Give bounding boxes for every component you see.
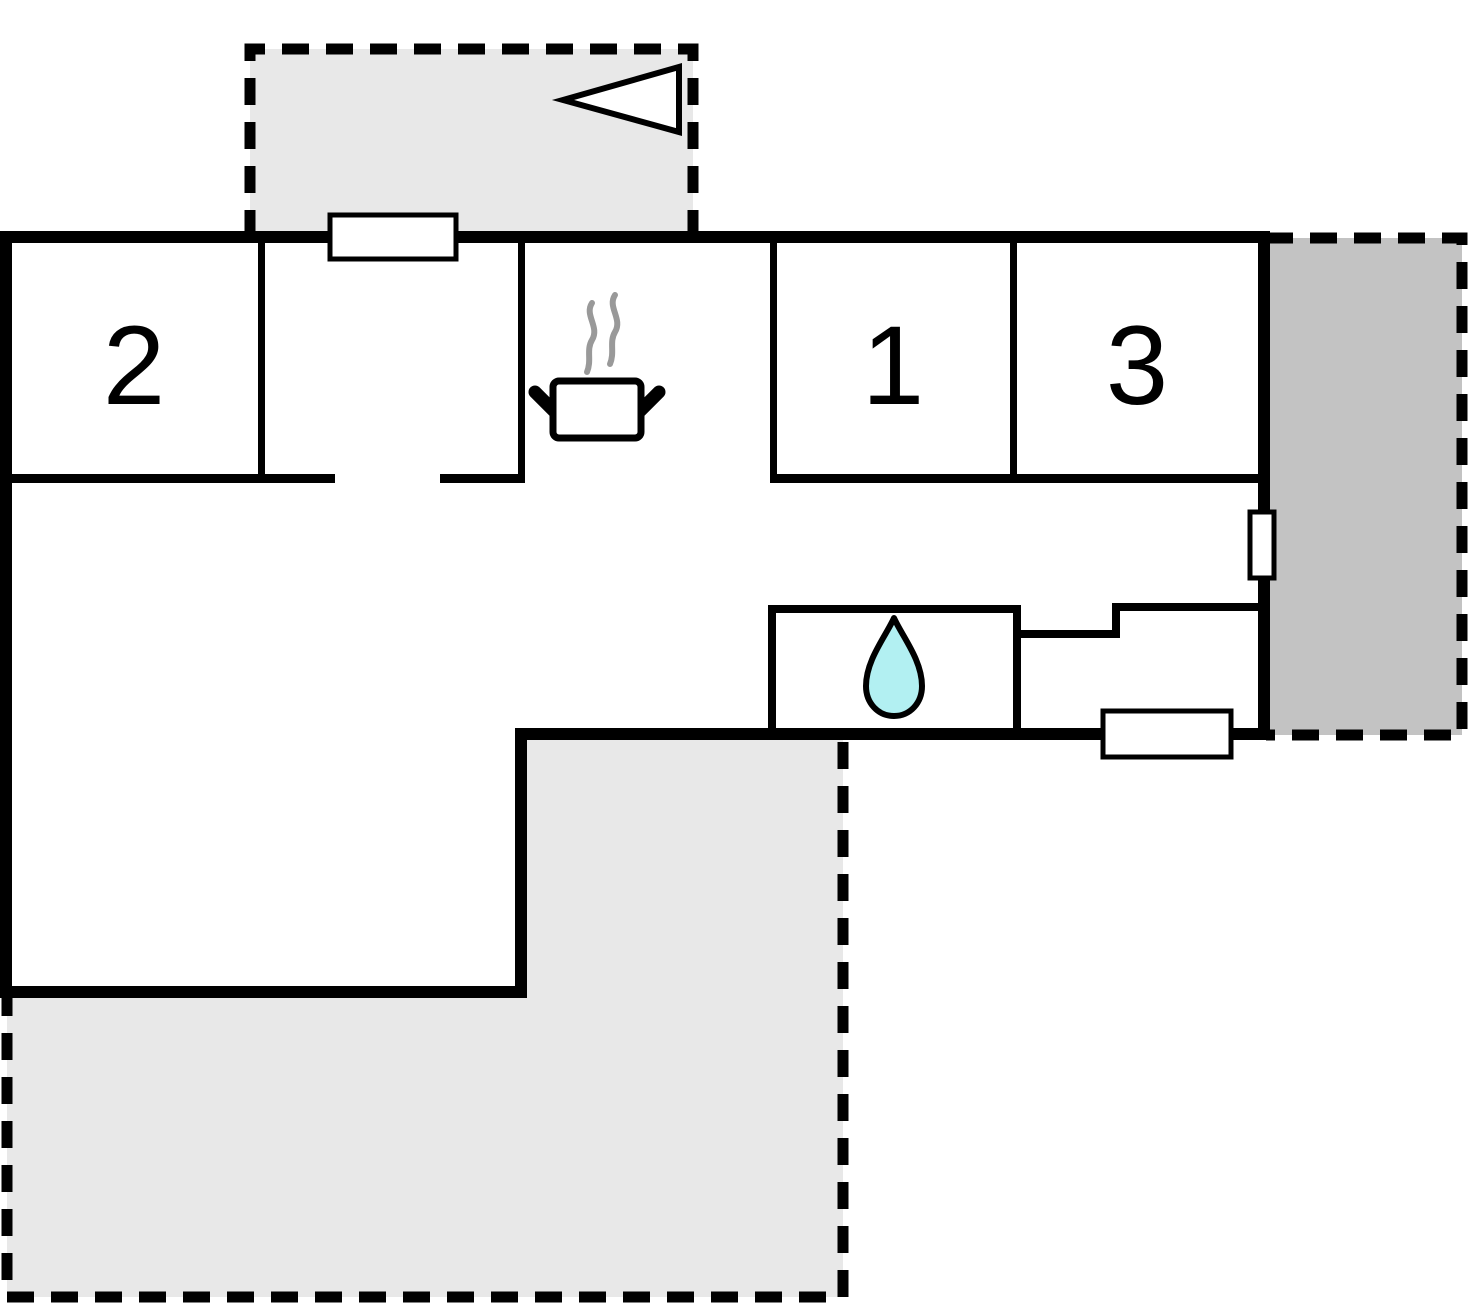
top-terrace-fill (250, 49, 693, 235)
floor-plan-drawing: 2 1 3 (0, 0, 1469, 1304)
wall-below-room1-room3 (770, 474, 1270, 483)
niche-wall-upper (1112, 603, 1270, 611)
outer-wall-top (0, 231, 1270, 243)
wall-below-hall-with-door (440, 474, 525, 483)
wall-room1-left (770, 243, 777, 483)
room-label-1: 1 (862, 303, 924, 428)
outer-wall-living-bottom (0, 986, 527, 998)
outer-wall-extension-right (515, 728, 527, 998)
bathroom-wall-right (1013, 605, 1021, 738)
wall-room1-room3 (1010, 243, 1017, 483)
pot-body (553, 381, 641, 438)
outer-wall-right (1258, 231, 1270, 740)
window-top-wall (330, 215, 456, 259)
right-terrace (1264, 238, 1462, 735)
bathroom-wall-left (768, 605, 776, 738)
bathroom-wall-top (768, 605, 1021, 613)
wall-below-room2 (0, 474, 335, 483)
top-terrace (250, 49, 693, 237)
right-terrace-fill (1264, 238, 1462, 735)
outer-wall-left (0, 231, 12, 998)
floor-plan-canvas: 2 1 3 (0, 0, 1469, 1304)
niche-wall-lower (1013, 630, 1120, 638)
wall-hall-kitchen (518, 243, 525, 481)
wall-room2-hall (258, 243, 265, 481)
room-label-3: 3 (1106, 303, 1168, 428)
window-right-wall (1250, 512, 1274, 578)
room-label-2: 2 (103, 303, 165, 428)
window-bottom-wall (1103, 711, 1231, 757)
